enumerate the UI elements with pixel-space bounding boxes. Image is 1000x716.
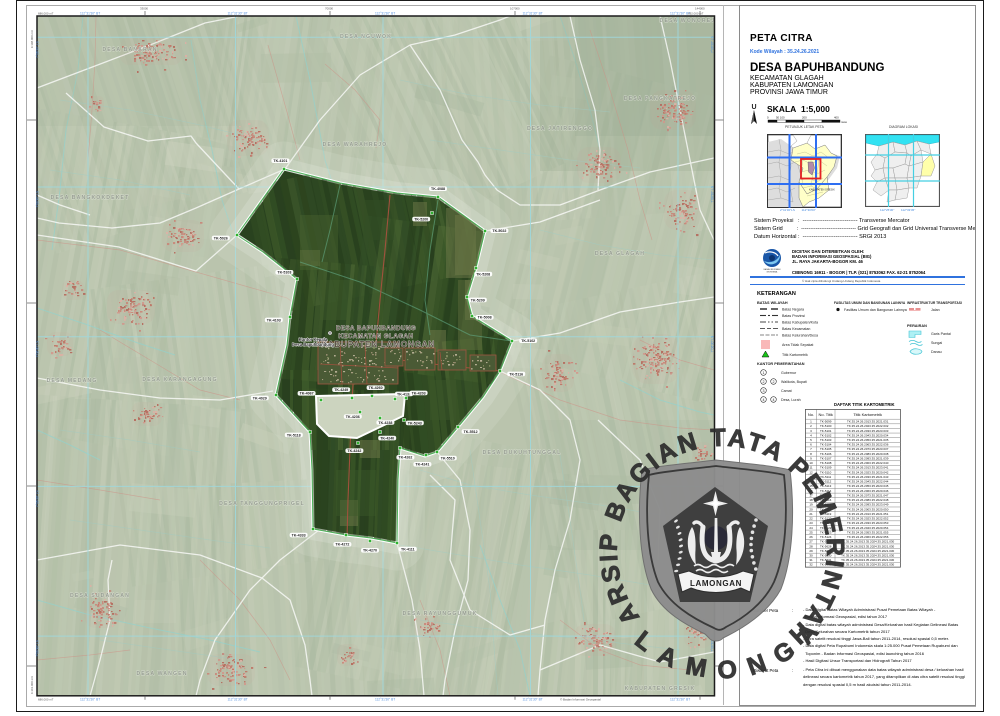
svg-text:LAMONGAN: LAMONGAN [690, 579, 742, 588]
